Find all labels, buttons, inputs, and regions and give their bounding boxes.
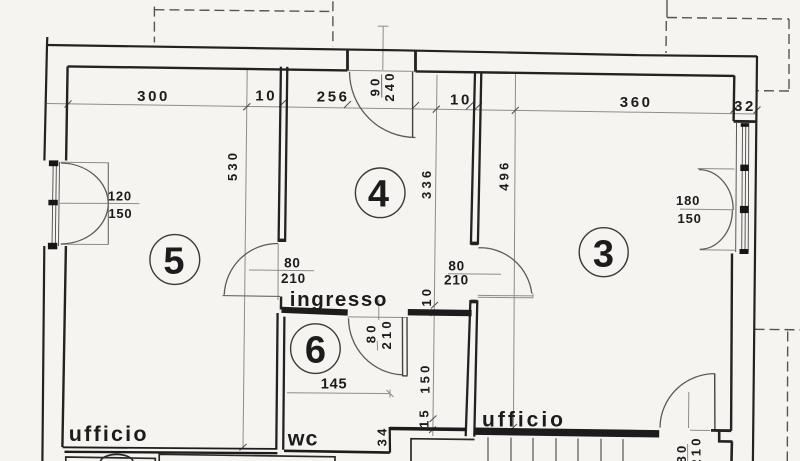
svg-text:10: 10: [450, 91, 472, 108]
svg-text:wc: wc: [287, 427, 319, 451]
svg-text:80: 80: [674, 443, 689, 461]
svg-text:6: 6: [305, 330, 326, 372]
svg-text:180: 180: [676, 193, 700, 208]
svg-text:145: 145: [321, 376, 348, 392]
svg-text:80: 80: [284, 255, 301, 270]
svg-text:32: 32: [734, 98, 756, 115]
svg-text:150: 150: [108, 206, 132, 221]
svg-text:ufficio: ufficio: [482, 409, 566, 432]
svg-text:3: 3: [593, 234, 614, 276]
svg-text:240: 240: [382, 70, 397, 101]
svg-text:80: 80: [448, 259, 465, 274]
svg-text:530: 530: [225, 150, 240, 181]
svg-text:360: 360: [620, 94, 653, 111]
svg-text:80: 80: [363, 322, 378, 343]
svg-text:336: 336: [419, 168, 434, 199]
svg-text:90: 90: [367, 75, 382, 96]
svg-text:210: 210: [688, 435, 703, 461]
svg-text:150: 150: [417, 362, 432, 393]
svg-text:4: 4: [368, 174, 389, 216]
svg-text:300: 300: [137, 88, 170, 105]
svg-text:210: 210: [444, 273, 469, 288]
svg-text:ingresso: ingresso: [290, 288, 388, 311]
svg-text:256: 256: [317, 88, 350, 105]
svg-text:150: 150: [678, 211, 702, 226]
svg-text:ufficio: ufficio: [69, 422, 149, 446]
svg-text:10: 10: [419, 286, 434, 307]
svg-text:120: 120: [108, 188, 132, 203]
svg-text:210: 210: [379, 318, 394, 349]
svg-text:496: 496: [496, 160, 511, 191]
svg-text:5: 5: [163, 241, 184, 283]
svg-text:210: 210: [281, 271, 306, 286]
svg-text:10: 10: [255, 88, 277, 105]
svg-text:34: 34: [375, 425, 390, 446]
svg-text:15: 15: [417, 407, 432, 428]
